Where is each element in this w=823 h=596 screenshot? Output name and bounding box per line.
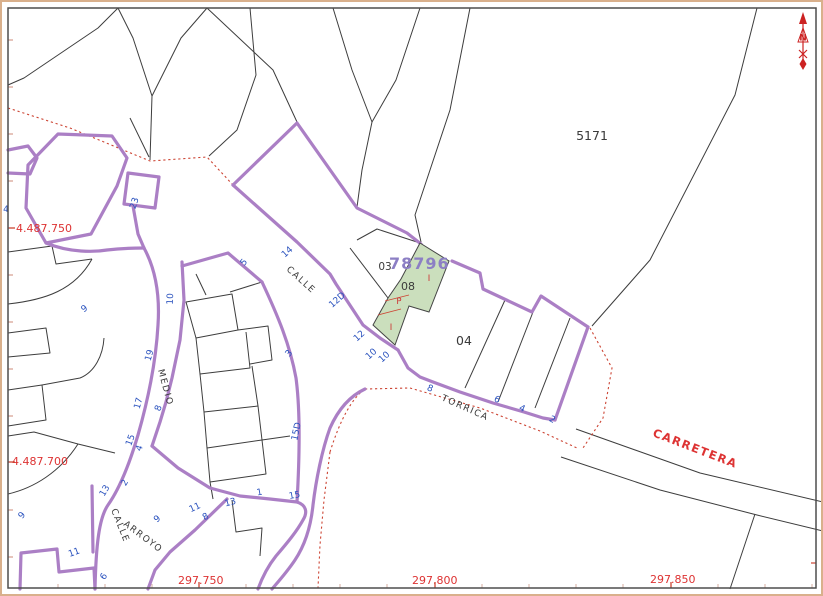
house-number: 10 xyxy=(166,293,176,305)
parcel-number: 5171 xyxy=(576,128,608,143)
parcel-use-label: I xyxy=(390,323,393,333)
parcel-ref-label: 78796 xyxy=(389,254,450,273)
y-coordinate-label: 4.487.700 xyxy=(12,455,68,468)
cadastral-map-viewport[interactable]: 42391019171542138911691181311515D351412D… xyxy=(0,0,823,596)
x-coordinate-label: 297.750 xyxy=(178,574,224,587)
house-number: 15 xyxy=(288,490,301,502)
x-coordinate-label: 297.850 xyxy=(650,573,696,586)
parcel-use-label: I xyxy=(428,274,431,284)
cadastral-map[interactable]: 42391019171542138911691181311515D351412D… xyxy=(0,0,823,596)
y-coordinate-label: 4.487.750 xyxy=(16,222,72,235)
parcel-number: 08 xyxy=(401,280,415,293)
north-letter: N xyxy=(799,34,807,44)
parcel-number: 04 xyxy=(456,333,472,348)
parcel-use-label: P xyxy=(396,297,401,307)
